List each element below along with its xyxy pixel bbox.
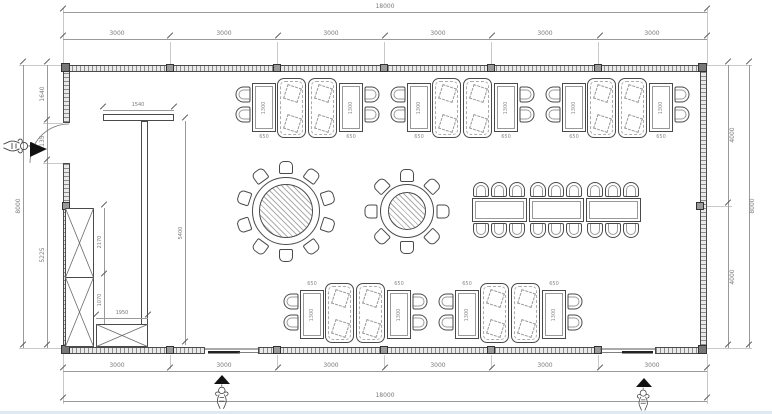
booth-table: 1300: [300, 290, 324, 339]
extension-line: [598, 42, 599, 64]
cushion: [593, 114, 612, 133]
partition-wall-vertical: [141, 121, 148, 325]
cushion: [486, 289, 505, 308]
entry-figure-icon: [637, 388, 649, 411]
entry-arrow-icon: [636, 378, 652, 387]
chair: [605, 182, 621, 197]
chair: [413, 294, 428, 310]
banquet-table: [529, 198, 584, 222]
extension-line: [63, 8, 64, 65]
sliding-door: [600, 349, 655, 354]
cushion: [331, 319, 350, 338]
column: [487, 346, 495, 354]
chair: [566, 223, 582, 238]
chair: [509, 182, 525, 197]
cushion: [283, 114, 302, 133]
table-width-label: 650: [562, 134, 586, 140]
dim-line-counter: [96, 318, 148, 319]
dim-bottom-seg: 3000: [92, 362, 142, 370]
table-length-label: 1300: [261, 90, 267, 126]
cabinet-cross-lines: [66, 209, 148, 347]
wall-left-lower: [63, 163, 70, 354]
chair: [302, 166, 321, 185]
corner-column: [698, 345, 707, 354]
chair: [587, 223, 603, 238]
extension-line: [491, 42, 492, 64]
booth-table: 1300: [387, 290, 411, 339]
booth-table: 1300: [649, 83, 673, 132]
column: [696, 202, 704, 210]
chair: [520, 107, 535, 123]
dim-top-seg: 3000: [306, 30, 356, 38]
extension-line: [19, 348, 63, 349]
dim-bottom-seg: 3000: [520, 362, 570, 370]
cushion: [362, 319, 381, 338]
cushion: [469, 84, 488, 103]
extension-line: [384, 42, 385, 64]
floor-plan-canvas: 18000 3000 3000 3000 3000 3000 3000 3000…: [0, 0, 772, 414]
booth-bench: [308, 78, 337, 138]
dim-line-top-segments: [63, 39, 707, 40]
chair: [568, 315, 583, 331]
chair: [302, 237, 321, 256]
cushion: [314, 114, 333, 133]
dim-cabinet-upper: 2170: [96, 217, 104, 267]
chair: [530, 182, 546, 197]
partition-wall-horizontal: [103, 114, 174, 121]
chair: [473, 223, 489, 238]
wall-bottom-middle: [258, 347, 600, 354]
booth-table: 1300: [562, 83, 586, 132]
table-width-label: 650: [494, 134, 518, 140]
chair: [566, 182, 582, 197]
cushion: [438, 84, 457, 103]
chair: [391, 107, 406, 123]
chair: [365, 204, 378, 218]
dim-partition-run: 5400: [177, 208, 185, 258]
dim-bottom-seg: 3000: [627, 362, 677, 370]
cushion: [593, 84, 612, 103]
dim-counter-length: 1950: [97, 309, 147, 317]
dim-top-seg: 3000: [413, 30, 463, 38]
chair: [546, 87, 561, 103]
table-length-label: 1300: [551, 297, 557, 333]
cushion: [283, 84, 302, 103]
chair: [400, 241, 414, 254]
booth-table: 1300: [339, 83, 363, 132]
chair: [491, 223, 507, 238]
chair: [251, 166, 270, 185]
chair: [413, 315, 428, 331]
booth-bench: [277, 78, 306, 138]
dim-top-total: 18000: [345, 3, 425, 11]
chair: [423, 176, 442, 195]
round-table-small: [380, 184, 434, 238]
cushion: [624, 114, 643, 133]
chair: [473, 182, 489, 197]
chair: [530, 223, 546, 238]
chair: [587, 182, 603, 197]
sliding-door: [205, 349, 258, 354]
dim-line-left-segments: [47, 65, 48, 348]
dim-top-seg: 3000: [520, 30, 570, 38]
banquet-table: [586, 198, 641, 222]
crossed-cabinets: [66, 209, 148, 347]
corner-column: [61, 63, 70, 72]
column: [380, 64, 388, 72]
chair: [391, 87, 406, 103]
chair: [372, 176, 391, 195]
chair: [365, 107, 380, 123]
table-width-label: 650: [649, 134, 673, 140]
table-length-label: 1300: [416, 90, 422, 126]
table-length-label: 1300: [348, 90, 354, 126]
chair: [437, 204, 450, 218]
chair: [251, 237, 270, 256]
column: [487, 64, 495, 72]
corner-column: [61, 345, 70, 354]
column: [594, 346, 602, 354]
chair: [520, 87, 535, 103]
entry-arrow-icon: [214, 375, 230, 384]
hatched-glass-top: [388, 192, 426, 230]
dim-line-right-segments: [728, 65, 729, 348]
dim-left-total: 8000: [15, 181, 23, 231]
booth-table: 1300: [455, 290, 479, 339]
dim-top-seg: 3000: [92, 30, 142, 38]
cushion: [314, 84, 333, 103]
dim-line-bottom-total: [63, 401, 707, 402]
chair: [439, 294, 454, 310]
chair: [605, 223, 621, 238]
chair: [439, 315, 454, 331]
chair: [279, 249, 293, 262]
dim-line-cabinets: [104, 208, 105, 347]
table-width-label: 650: [387, 281, 411, 287]
table-length-label: 1300: [658, 90, 664, 126]
entry-figure-icon: [4, 139, 31, 153]
dim-line-partition-run: [185, 121, 186, 345]
table-width-label: 650: [455, 281, 479, 287]
booth-bench: [587, 78, 616, 138]
booth-table: 1300: [494, 83, 518, 132]
dim-left-seg: 1640: [39, 69, 47, 119]
wall-left-upper: [63, 65, 70, 123]
table-width-label: 650: [300, 281, 324, 287]
extension-line: [707, 65, 752, 66]
dim-right-total: 8000: [749, 181, 757, 231]
booth-bench: [618, 78, 647, 138]
chair: [236, 189, 253, 206]
dim-line-left-total: [23, 65, 24, 348]
banquet-table: [472, 198, 527, 222]
column: [273, 346, 281, 354]
entry-figure-icon: [216, 385, 228, 409]
chair: [236, 216, 253, 233]
table-length-label: 1300: [396, 297, 402, 333]
chair: [548, 182, 564, 197]
dim-top-seg: 3000: [199, 30, 249, 38]
chair: [400, 169, 414, 182]
extension-line: [170, 42, 171, 64]
extension-line: [277, 42, 278, 64]
cushion: [486, 319, 505, 338]
cushion: [517, 289, 536, 308]
chair: [365, 87, 380, 103]
entry-arrow-icon: [31, 142, 45, 156]
chair: [623, 223, 639, 238]
table-length-label: 1300: [464, 297, 470, 333]
booth-table: 1300: [542, 290, 566, 339]
dim-bottom-seg: 3000: [413, 362, 463, 370]
dim-bottom-total: 18000: [345, 392, 425, 400]
wall-bottom-left: [63, 347, 205, 354]
table-width-label: 650: [542, 281, 566, 287]
chair: [675, 107, 690, 123]
chair: [546, 107, 561, 123]
table-length-label: 1300: [309, 297, 315, 333]
dim-right-seg: 4000: [729, 110, 737, 160]
column: [62, 202, 70, 210]
corner-column: [698, 63, 707, 72]
cushion: [469, 114, 488, 133]
chair: [320, 216, 337, 233]
dim-line-bottom-segments: [63, 371, 707, 372]
hatched-glass-top: [259, 184, 313, 238]
cushion: [331, 289, 350, 308]
booth-bench: [432, 78, 461, 138]
cushion: [624, 84, 643, 103]
chair: [509, 223, 525, 238]
chair: [236, 107, 251, 123]
booth-bench: [511, 283, 540, 343]
chair: [320, 189, 337, 206]
extension-line: [707, 348, 752, 349]
chair: [279, 161, 293, 174]
column: [594, 64, 602, 72]
booth-bench: [463, 78, 492, 138]
table-width-label: 650: [252, 134, 276, 140]
table-width-label: 650: [407, 134, 431, 140]
column: [273, 64, 281, 72]
table-length-label: 1300: [571, 90, 577, 126]
booth-table: 1300: [252, 83, 276, 132]
dim-line-top-total: [63, 12, 707, 13]
booth-bench: [356, 283, 385, 343]
dim-left-seg: 5225: [39, 230, 47, 280]
cushion: [362, 289, 381, 308]
column: [166, 64, 174, 72]
chair: [372, 227, 391, 246]
chair: [548, 223, 564, 238]
booth-bench: [325, 283, 354, 343]
chair: [623, 182, 639, 197]
dim-partition-length: 1540: [113, 101, 163, 109]
dim-bottom-seg: 3000: [306, 362, 356, 370]
chair: [491, 182, 507, 197]
chair: [423, 227, 442, 246]
chair: [236, 87, 251, 103]
dim-bottom-seg: 3000: [199, 362, 249, 370]
booth-table: 1300: [407, 83, 431, 132]
chair: [284, 315, 299, 331]
dim-line-partition-length: [103, 110, 174, 111]
round-table-large: [252, 177, 320, 245]
dim-right-seg: 4000: [729, 252, 737, 302]
dim-top-seg: 3000: [627, 30, 677, 38]
table-width-label: 650: [339, 134, 363, 140]
extension-line: [19, 65, 63, 66]
chair: [284, 294, 299, 310]
booth-bench: [480, 283, 509, 343]
chair: [675, 87, 690, 103]
chair: [568, 294, 583, 310]
table-length-label: 1300: [503, 90, 509, 126]
column: [380, 346, 388, 354]
cushion: [517, 319, 536, 338]
column: [166, 346, 174, 354]
cushion: [438, 114, 457, 133]
extension-line: [707, 8, 708, 65]
